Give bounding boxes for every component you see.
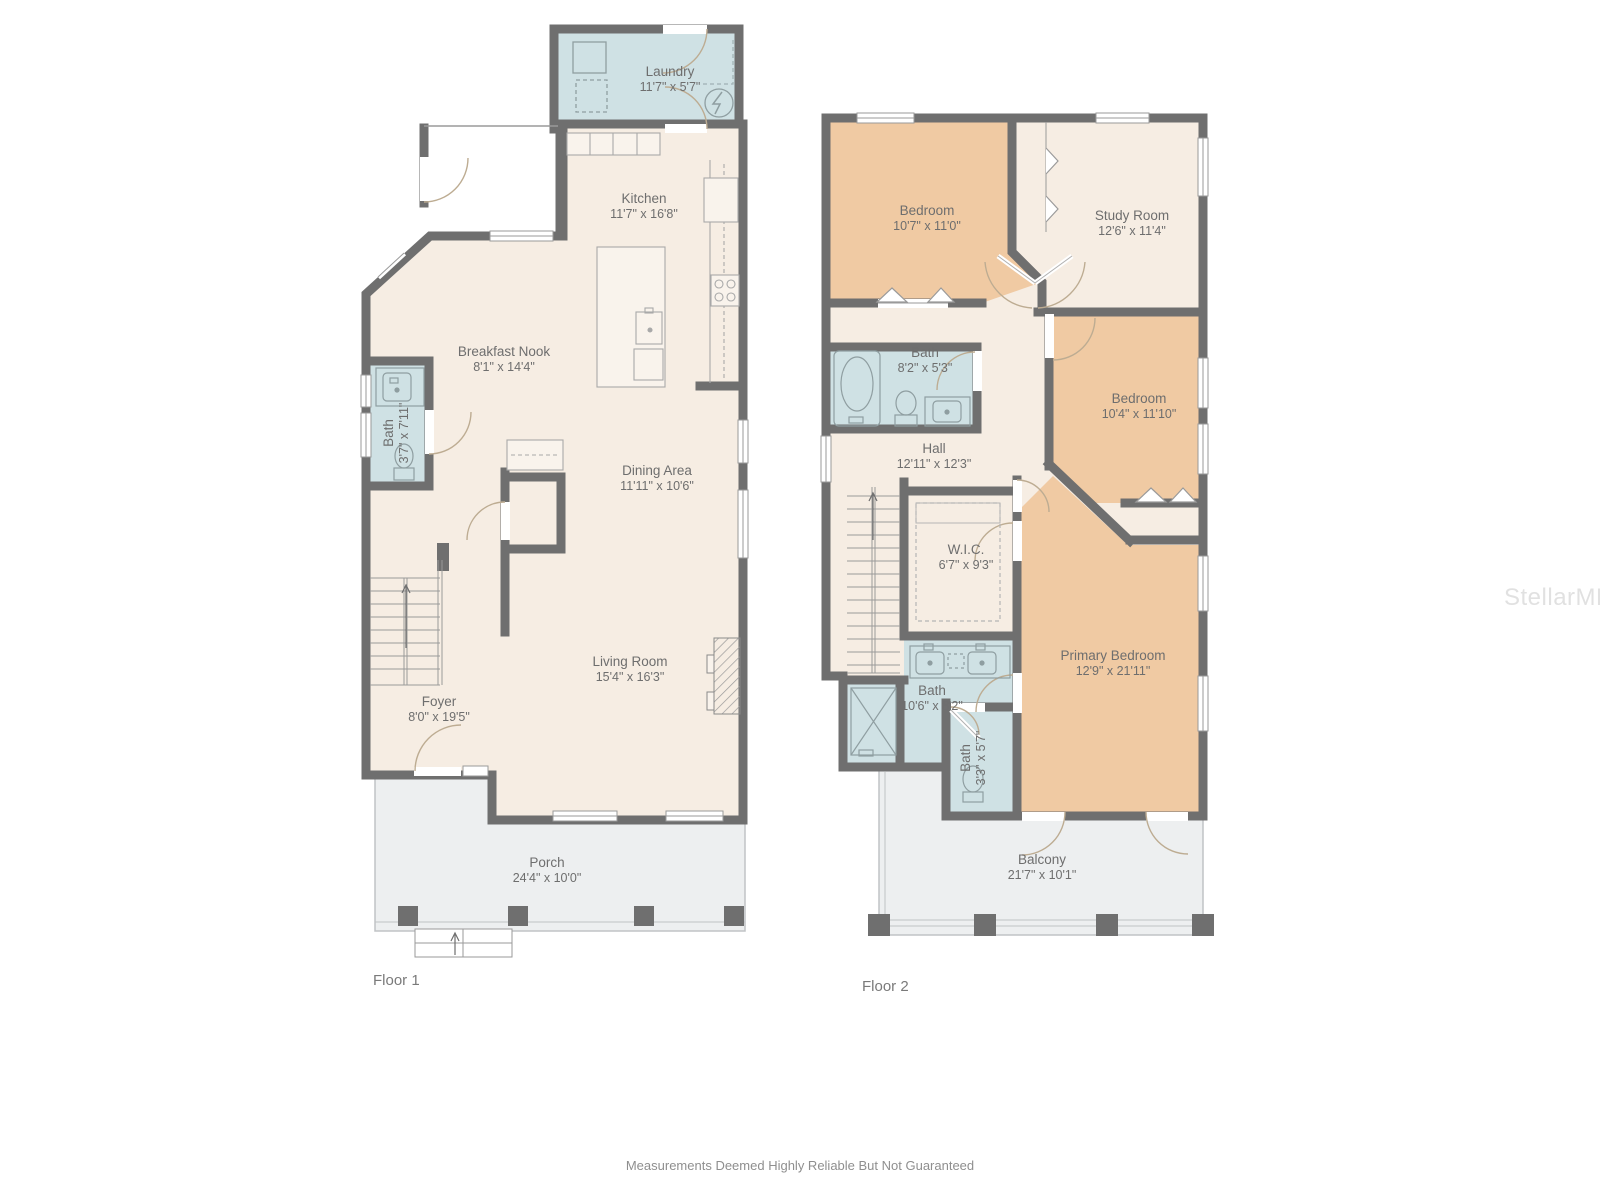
floorplan-svg [0, 0, 1600, 1200]
room-dims: 6'7" x 9'3" [939, 559, 994, 574]
room-label-primary-bedroom: Primary Bedroom 12'9" x 21'11" [1060, 648, 1165, 680]
room-dims: 12'6" x 11'4" [1095, 225, 1169, 240]
room-dims: 24'4" x 10'0" [513, 872, 582, 887]
room-dims: 12'9" x 21'11" [1060, 665, 1165, 680]
stove-icon [711, 275, 739, 306]
room-dims: 11'7" x 16'8" [610, 208, 678, 223]
room-name: W.I.C. [939, 542, 994, 558]
room-name: Bath [898, 345, 953, 361]
room-dims: 11'11" x 10'6" [620, 480, 694, 495]
porch-steps [415, 929, 512, 957]
floor2-label: Floor 2 [862, 978, 909, 995]
room-dims: 3'3" x 5'7" [975, 731, 990, 786]
room-name: Hall [897, 441, 972, 457]
room-name: Bath [901, 683, 963, 699]
room-dims: 3'7" x 7'11" [398, 403, 413, 464]
room-name: Bedroom [1102, 391, 1177, 407]
stellar-mls-watermark: StellarMLS [1504, 584, 1600, 612]
room-label-foyer: Foyer 8'0" x 19'5" [408, 694, 470, 726]
room-dims: 8'2" x 5'3" [898, 362, 953, 377]
room-label-balcony: Balcony 21'7" x 10'1" [1008, 852, 1077, 884]
room-dims: 8'1" x 14'4" [458, 361, 550, 376]
room-label-study-room: Study Room 12'6" x 11'4" [1095, 208, 1169, 240]
floor1-label: Floor 1 [373, 972, 420, 989]
room-label-living-room: Living Room 15'4" x 16'3" [592, 654, 667, 686]
room-dims: 10'4" x 11'10" [1102, 408, 1177, 423]
room-label-bedroom-1: Bedroom 10'7" x 11'0" [893, 203, 961, 235]
room-label-breakfast-nook: Breakfast Nook 8'1" x 14'4" [458, 344, 550, 376]
room-name: Kitchen [610, 191, 678, 207]
room-label-hall: Hall 12'11" x 12'3" [897, 441, 972, 473]
room-name: Balcony [1008, 852, 1077, 868]
room-name: Breakfast Nook [458, 344, 550, 360]
room-name: Bedroom [893, 203, 961, 219]
room-label-kitchen: Kitchen 11'7" x 16'8" [610, 191, 678, 223]
room-label-dining-area: Dining Area 11'11" x 10'6" [620, 463, 694, 495]
room-dims: 10'6" x 8'2" [901, 700, 963, 715]
floorplan-page: Laundry 11'7" x 5'7" Kitchen 11'7" x 16'… [0, 0, 1600, 1200]
room-name: Dining Area [620, 463, 694, 479]
room-name: Laundry [640, 64, 701, 80]
fridge-icon [704, 178, 738, 222]
room-dims: 15'4" x 16'3" [592, 671, 667, 686]
room-name: Porch [513, 855, 582, 871]
disclaimer-text: Measurements Deemed Highly Reliable But … [626, 1158, 974, 1173]
room-dims: 21'7" x 10'1" [1008, 869, 1077, 884]
room-dims: 11'7" x 5'7" [640, 81, 701, 96]
room-name: Bath [381, 403, 397, 464]
room-dims: 8'0" x 19'5" [408, 711, 470, 726]
room-label-porch: Porch 24'4" x 10'0" [513, 855, 582, 887]
room-label-bath-f2-hall: Bath 8'2" x 5'3" [898, 345, 953, 377]
room-name: Living Room [592, 654, 667, 670]
room-name: Primary Bedroom [1060, 648, 1165, 664]
room-label-bath-f2-small: Bath 3'3" x 5'7" [958, 731, 990, 786]
room-label-laundry: Laundry 11'7" x 5'7" [640, 64, 701, 96]
room-label-bedroom-2: Bedroom 10'4" x 11'10" [1102, 391, 1177, 423]
room-dims: 10'7" x 11'0" [893, 220, 961, 235]
room-name: Foyer [408, 694, 470, 710]
room-name: Bath [958, 731, 974, 786]
room-dims: 12'11" x 12'3" [897, 458, 972, 473]
room-label-wic: W.I.C. 6'7" x 9'3" [939, 542, 994, 574]
room-label-bath-f2-primary: Bath 10'6" x 8'2" [901, 683, 963, 715]
kitchen-island [597, 247, 665, 387]
room-name: Study Room [1095, 208, 1169, 224]
room-label-bath-f1: Bath 3'7" x 7'11" [381, 403, 413, 464]
